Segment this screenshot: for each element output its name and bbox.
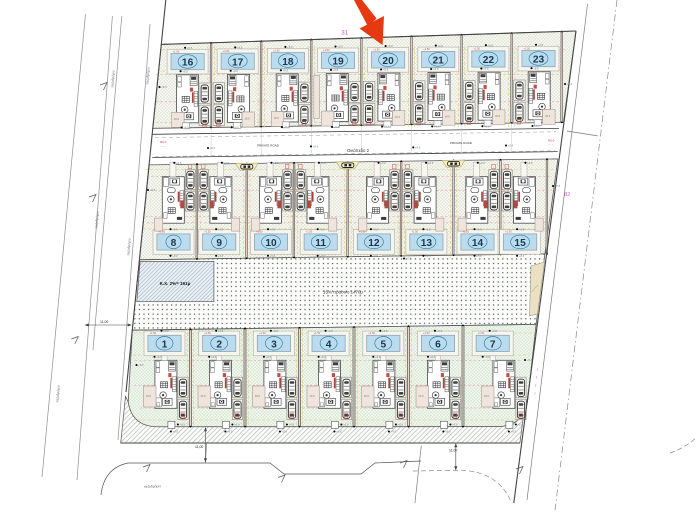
svg-text:+8.8: +8.8 bbox=[430, 355, 436, 359]
svg-text:22: 22 bbox=[483, 55, 495, 66]
svg-text:17: 17 bbox=[232, 57, 244, 68]
svg-text:+1.50: +1.50 bbox=[173, 49, 180, 53]
svg-text:+8.8: +8.8 bbox=[336, 430, 342, 434]
svg-text:+8.8: +8.8 bbox=[289, 423, 295, 427]
svg-text:+1.50: +1.50 bbox=[259, 331, 266, 335]
svg-text:+8.8: +8.8 bbox=[406, 257, 412, 261]
svg-text:+1.50: +1.50 bbox=[423, 47, 430, 51]
svg-text:+8.8: +8.8 bbox=[480, 161, 486, 165]
svg-text:+8.8: +8.8 bbox=[555, 184, 561, 188]
svg-text:Οικόπεδο 2: Οικόπεδο 2 bbox=[347, 148, 370, 153]
svg-text:±0.0: ±0.0 bbox=[418, 394, 424, 398]
svg-text:+8.8: +8.8 bbox=[518, 423, 524, 427]
svg-text:7: 7 bbox=[490, 340, 496, 351]
svg-text:+8.8: +8.8 bbox=[391, 430, 397, 434]
svg-text:+8.8: +8.8 bbox=[333, 68, 339, 72]
svg-text:+1.50: +1.50 bbox=[223, 49, 230, 53]
svg-text:+8.8: +8.8 bbox=[433, 67, 439, 71]
svg-text:Κ.Χ. 2%= 191μ: Κ.Χ. 2%= 191μ bbox=[160, 281, 191, 286]
svg-text:+8.8: +8.8 bbox=[218, 254, 224, 258]
svg-text:±0.0: ±0.0 bbox=[484, 394, 490, 398]
svg-text:+8.8: +8.8 bbox=[425, 254, 431, 258]
svg-text:+8.8: +8.8 bbox=[327, 329, 333, 333]
svg-text:10: 10 bbox=[265, 238, 277, 249]
svg-text:+8.8: +8.8 bbox=[533, 66, 539, 70]
svg-text:+8.8: +8.8 bbox=[237, 46, 243, 50]
svg-text:+8.8: +8.8 bbox=[270, 254, 276, 258]
svg-text:+8.8: +8.8 bbox=[452, 423, 458, 427]
svg-text:+8.8: +8.8 bbox=[211, 355, 217, 359]
svg-text:+8.8: +8.8 bbox=[415, 146, 421, 150]
svg-text:+1.50: +1.50 bbox=[306, 229, 313, 233]
svg-text:±0.0: ±0.0 bbox=[445, 115, 451, 119]
svg-text:+8.8: +8.8 bbox=[384, 125, 390, 129]
svg-text:+8.8: +8.8 bbox=[163, 329, 169, 333]
svg-text:+8.8: +8.8 bbox=[527, 161, 533, 165]
svg-text:19: 19 bbox=[332, 56, 344, 67]
svg-text:16: 16 bbox=[182, 58, 194, 69]
svg-text:+8.8: +8.8 bbox=[172, 227, 178, 231]
svg-text:±0.0: ±0.0 bbox=[309, 394, 315, 398]
svg-text:+1.50: +1.50 bbox=[473, 47, 480, 51]
svg-text:+8.8: +8.8 bbox=[234, 423, 240, 427]
svg-text:+8.8: +8.8 bbox=[373, 254, 379, 258]
svg-text:±0.0: ±0.0 bbox=[245, 116, 251, 120]
svg-text:±0.0: ±0.0 bbox=[364, 394, 370, 398]
svg-text:+8.8: +8.8 bbox=[492, 329, 498, 333]
svg-text:+8.8: +8.8 bbox=[210, 146, 216, 150]
svg-text:12: 12 bbox=[368, 238, 380, 249]
svg-text:+8.8: +8.8 bbox=[321, 161, 327, 165]
svg-text:+8.8: +8.8 bbox=[334, 125, 340, 129]
svg-text:+8.8: +8.8 bbox=[383, 68, 389, 72]
svg-text:+8.8: +8.8 bbox=[313, 145, 319, 149]
svg-text:±0.0: ±0.0 bbox=[545, 114, 551, 118]
svg-text:+8.8: +8.8 bbox=[273, 329, 279, 333]
svg-text:+1.50: +1.50 bbox=[314, 331, 321, 335]
svg-text:πεζοδρόμιο: πεζοδρόμιο bbox=[55, 385, 60, 403]
svg-text:πεζοδρόμιο: πεζοδρόμιο bbox=[126, 238, 131, 256]
svg-text:πεζοδρόμιο: πεζοδρόμιο bbox=[110, 70, 115, 88]
svg-text:+1.50: +1.50 bbox=[505, 229, 512, 233]
svg-text:15: 15 bbox=[514, 238, 526, 249]
svg-text:+8.8: +8.8 bbox=[567, 82, 573, 86]
svg-text:21: 21 bbox=[433, 56, 445, 67]
svg-text:+8.8: +8.8 bbox=[382, 329, 388, 333]
svg-text:+8.8: +8.8 bbox=[180, 423, 186, 427]
svg-text:+8.8: +8.8 bbox=[176, 161, 182, 165]
svg-text:→→: →→ bbox=[160, 144, 166, 148]
svg-text:πεζοδρόμιο: πεζοδρόμιο bbox=[94, 211, 99, 229]
svg-text:+8.8: +8.8 bbox=[282, 430, 288, 434]
svg-text:23: 23 bbox=[533, 55, 545, 66]
svg-text:+8.8: +8.8 bbox=[343, 423, 349, 427]
svg-text:+8.8: +8.8 bbox=[484, 124, 490, 128]
svg-text:+8.8: +8.8 bbox=[534, 124, 540, 128]
svg-text:+8.8: +8.8 bbox=[283, 68, 289, 72]
svg-text:+1.50: +1.50 bbox=[159, 229, 166, 233]
svg-text:πεζοδρόμιο: πεζοδρόμιο bbox=[145, 67, 150, 85]
svg-text:+1.50: +1.50 bbox=[359, 229, 366, 233]
svg-text:+8.8: +8.8 bbox=[387, 44, 393, 48]
svg-text:+8.8: +8.8 bbox=[150, 188, 156, 192]
svg-text:+8.8: +8.8 bbox=[287, 45, 293, 49]
svg-text:±0.0: ±0.0 bbox=[200, 394, 206, 398]
svg-text:+1.50: +1.50 bbox=[323, 48, 330, 52]
svg-text:+8.8: +8.8 bbox=[156, 355, 162, 359]
svg-text:+8.8: +8.8 bbox=[320, 227, 326, 231]
svg-text:+8.8: +8.8 bbox=[437, 329, 443, 333]
svg-text:±0.0: ±0.0 bbox=[255, 394, 261, 398]
svg-text:±0.0: ±0.0 bbox=[495, 114, 501, 118]
svg-text:B2: B2 bbox=[564, 192, 570, 198]
svg-text:1: 1 bbox=[162, 340, 168, 351]
svg-text:+8.8: +8.8 bbox=[508, 144, 514, 148]
svg-text:+8.8: +8.8 bbox=[488, 43, 494, 47]
svg-text:+1.50: +1.50 bbox=[204, 229, 211, 233]
svg-text:+8.8: +8.8 bbox=[398, 423, 404, 427]
svg-text:11,00: 11,00 bbox=[100, 320, 108, 324]
svg-text:+8.8: +8.8 bbox=[538, 43, 544, 47]
svg-text:31: 31 bbox=[341, 29, 348, 36]
svg-text:20: 20 bbox=[382, 56, 394, 67]
svg-text:+1.50: +1.50 bbox=[204, 331, 211, 335]
svg-text:+1.50: +1.50 bbox=[373, 48, 380, 52]
svg-text:11,00: 11,00 bbox=[449, 449, 457, 453]
svg-text:18: 18 bbox=[282, 57, 294, 68]
svg-text:+1.50: +1.50 bbox=[273, 48, 280, 52]
svg-text:5: 5 bbox=[380, 340, 386, 351]
svg-text:+8.8: +8.8 bbox=[234, 125, 240, 129]
svg-text:+8.8: +8.8 bbox=[380, 161, 386, 165]
svg-text:+8.8: +8.8 bbox=[182, 69, 188, 73]
svg-text:11: 11 bbox=[315, 238, 326, 249]
svg-text:+1.50: +1.50 bbox=[423, 331, 430, 335]
svg-text:+1.50: +1.50 bbox=[463, 229, 470, 233]
svg-text:±0.0: ±0.0 bbox=[395, 115, 401, 119]
svg-text:+1.50: +1.50 bbox=[411, 229, 418, 233]
svg-text:+8.8: +8.8 bbox=[434, 125, 440, 129]
svg-text:8: 8 bbox=[171, 238, 177, 249]
svg-text:+1.50: +1.50 bbox=[368, 331, 375, 335]
svg-text:+8.8: +8.8 bbox=[173, 430, 179, 434]
svg-text:13: 13 bbox=[421, 238, 433, 249]
svg-text:+8.8: +8.8 bbox=[187, 46, 193, 50]
svg-text:+8.8: +8.8 bbox=[438, 44, 444, 48]
svg-text:+8.8: +8.8 bbox=[218, 227, 224, 231]
svg-text:+1.50: +1.50 bbox=[150, 331, 157, 335]
svg-text:+8.8: +8.8 bbox=[172, 254, 178, 258]
svg-text:PRIVATE ROAD: PRIVATE ROAD bbox=[450, 141, 473, 145]
svg-text:πεζοδρόμιο: πεζοδρόμιο bbox=[144, 484, 162, 489]
svg-text:+1.50: +1.50 bbox=[256, 229, 263, 233]
svg-text:PRIVATE ROAD: PRIVATE ROAD bbox=[257, 144, 280, 148]
svg-text:→→: →→ bbox=[548, 143, 554, 147]
svg-text:+8.8: +8.8 bbox=[337, 45, 343, 49]
svg-text:+8.8: +8.8 bbox=[476, 227, 482, 231]
svg-text:+8.8: +8.8 bbox=[527, 358, 533, 362]
svg-text:4: 4 bbox=[326, 340, 332, 351]
svg-text:±0.0: ±0.0 bbox=[146, 394, 152, 398]
svg-text:±0.0: ±0.0 bbox=[274, 116, 280, 120]
svg-text:+8.8: +8.8 bbox=[320, 355, 326, 359]
svg-text:2: 2 bbox=[216, 340, 222, 351]
svg-text:+8.8: +8.8 bbox=[273, 161, 279, 165]
svg-text:+8.8: +8.8 bbox=[284, 125, 290, 129]
svg-text:+8.8: +8.8 bbox=[218, 329, 224, 333]
svg-text:+8.8: +8.8 bbox=[375, 355, 381, 359]
svg-text:+8.8: +8.8 bbox=[445, 430, 451, 434]
svg-text:+8.8: +8.8 bbox=[425, 227, 431, 231]
svg-text:+8.8: +8.8 bbox=[483, 67, 489, 71]
svg-text:±0.0: ±0.0 bbox=[174, 117, 180, 121]
svg-text:+8.8: +8.8 bbox=[183, 126, 189, 130]
svg-text:+8.8: +8.8 bbox=[373, 227, 379, 231]
svg-text:+1.50: +1.50 bbox=[478, 331, 485, 335]
svg-text:9: 9 bbox=[216, 238, 222, 249]
svg-text:+8.8: +8.8 bbox=[511, 430, 517, 434]
svg-text:+8.8: +8.8 bbox=[270, 227, 276, 231]
svg-text:+8.8: +8.8 bbox=[161, 85, 167, 89]
svg-text:+8.8: +8.8 bbox=[224, 161, 230, 165]
svg-text:+8.8: +8.8 bbox=[519, 254, 525, 258]
svg-text:+1.50: +1.50 bbox=[524, 46, 531, 50]
svg-text:+8.8: +8.8 bbox=[227, 430, 233, 434]
svg-text:+8.8: +8.8 bbox=[485, 355, 491, 359]
svg-text:6: 6 bbox=[435, 340, 441, 351]
svg-text:+8.8: +8.8 bbox=[138, 363, 144, 367]
svg-text:+8.8: +8.8 bbox=[320, 254, 326, 258]
svg-text:+8.8: +8.8 bbox=[476, 254, 482, 258]
svg-text:11,00: 11,00 bbox=[195, 445, 203, 449]
svg-text:+8.8: +8.8 bbox=[266, 355, 272, 359]
svg-text:3: 3 bbox=[271, 340, 277, 351]
svg-text:+8.8: +8.8 bbox=[428, 161, 434, 165]
svg-text:+8.8: +8.8 bbox=[233, 69, 239, 73]
svg-text:15% πράσινο 1470μ: 15% πράσινο 1470μ bbox=[323, 289, 363, 294]
svg-text:+8.8: +8.8 bbox=[519, 227, 525, 231]
svg-text:14: 14 bbox=[472, 238, 484, 249]
